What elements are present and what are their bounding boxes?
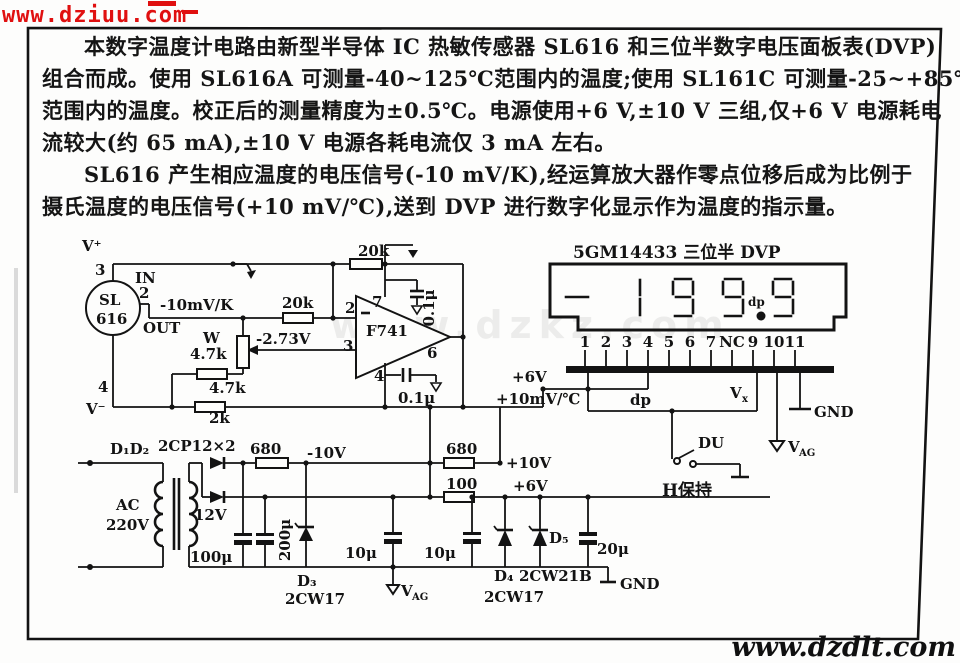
label-200u: 200μ (276, 519, 294, 561)
label-cap01-bot: 0.1μ (398, 389, 435, 407)
pin-number: 9 (748, 333, 758, 351)
transformer-primary (155, 482, 163, 546)
pin-number: 2 (601, 333, 611, 351)
cap-plate (463, 532, 481, 535)
label-du: DU (698, 434, 724, 452)
label-d5-type: 2CW21B (519, 567, 592, 585)
cap-plate (579, 540, 597, 545)
cap-plate (384, 532, 402, 535)
label-pot-value: 4.7k (190, 345, 227, 363)
label-rectifier-type: 2CP12×2 (158, 437, 236, 455)
label-sl: SL (99, 291, 121, 309)
label-out: OUT (143, 319, 181, 337)
label-rail-pos10: +10V (506, 454, 551, 472)
label-cap01-top: 0.1μ (420, 289, 438, 326)
label-op-pin7: 7 (372, 293, 382, 311)
pin-number: 7 (706, 333, 716, 351)
label-d3: D₃ (297, 572, 317, 590)
label-pin4: 4 (98, 378, 108, 396)
pin-number: NC (719, 333, 745, 351)
description-line: SL616 产生相应温度的电压信号(-10 mV/K),经运算放大器作零点位移后… (42, 159, 942, 191)
label-vx: V (729, 384, 742, 402)
label-r20k-in: 20k (282, 294, 314, 312)
label-r680b: 680 (446, 440, 477, 458)
zener-d4 (498, 530, 512, 546)
cap-plate (579, 532, 597, 536)
label-220v: 220V (106, 516, 149, 534)
pin-number: 5 (664, 333, 674, 351)
pin-number: 4 (643, 333, 653, 351)
label-gnd-psu: GND (620, 575, 660, 593)
label-temp-coeff: -10mV/K (160, 296, 234, 314)
label-d1d2: D₁D₂ (110, 440, 149, 458)
label-offset-v: -2.73V (256, 330, 311, 348)
label-12v: 12V (194, 506, 227, 524)
label-vag-sub: AG (798, 448, 815, 459)
pin-number: 11 (785, 333, 806, 351)
label-10u-a: 10μ (345, 544, 377, 562)
diode-d1 (210, 457, 224, 469)
vag-arrow-icon (770, 441, 784, 451)
description-line: 范围内的温度。校正后的测量精度为±0.5℃。电源使用+6 V,±10 V 三组,… (42, 95, 942, 127)
cap-plate (463, 539, 481, 544)
display-digit-9 (773, 279, 793, 316)
cap-plate (234, 533, 252, 536)
watermark-dash (148, 1, 176, 6)
description-line: 本数字温度计电路由新型半导体 IC 热敏传感器 SL616 和三位半数字电压面板… (42, 31, 942, 63)
zener-d5 (533, 530, 547, 546)
dvp-title: 5GM14433 三位半 DVP (573, 242, 781, 263)
label-dp-wire: dp (630, 391, 651, 409)
zener-d3 (299, 527, 313, 541)
vag-arrow-icon (387, 585, 399, 594)
description-text: 本数字温度计电路由新型半导体 IC 热敏传感器 SL616 和三位半数字电压面板… (42, 31, 942, 223)
cap-plate (234, 540, 252, 545)
description-line: 摄氏温度的电压信号(+10 mV/℃),送到 DVP 进行数字化显示作为温度的指… (42, 191, 942, 223)
label-ac: AC (115, 496, 140, 514)
switch-blade (679, 450, 694, 458)
label-d5: D₅ (549, 529, 569, 547)
supply-arrow-icon (408, 250, 418, 258)
decimal-point-dot (757, 312, 766, 321)
label-opamp: F741 (366, 322, 408, 340)
resistor-4k7 (197, 369, 227, 379)
label-r100: 100 (446, 475, 477, 493)
label-r47k: 4.7k (209, 379, 246, 397)
potentiometer-w (237, 336, 249, 368)
pin-number: 1 (580, 333, 590, 351)
label-10u-b: 10μ (424, 544, 456, 562)
label-20u: 20μ (597, 540, 629, 558)
label-d4-type: 2CW17 (484, 588, 544, 606)
label-616: 616 (96, 310, 127, 328)
resistor-680a (256, 458, 288, 468)
label-vx-sub: x (742, 394, 749, 405)
label-supply-6v: +6V (512, 368, 547, 386)
description-line: 组合而成。使用 SL616A 可测量-40~125℃范围内的温度;使用 SL16… (42, 63, 942, 95)
watermark-top: www.dziuu.com (2, 3, 187, 28)
watermark-bottom: www.dzdlt.com (731, 632, 956, 663)
pin-number: 10 (764, 333, 785, 351)
label-vag2-sub: AG (411, 592, 428, 603)
diode-d2 (210, 491, 224, 503)
label-op-pin6: 6 (427, 344, 437, 362)
cap-plate (384, 539, 402, 544)
pin-number: 6 (685, 333, 695, 351)
resistor-20k-feedback (350, 259, 382, 269)
label-rail-neg10: -10V (307, 444, 346, 462)
pin-number: 3 (622, 333, 632, 351)
label-signal-10mv: +10mV/℃ (496, 390, 580, 408)
label-v-minus: V⁻ (85, 400, 106, 418)
resistor-20k-input (283, 313, 313, 323)
label-op-pin3: 3 (343, 337, 353, 355)
label-r20k-fb: 20k (358, 242, 390, 260)
label-pin2: 2 (139, 284, 149, 302)
switch-contact (674, 458, 680, 464)
resistor-680b (444, 458, 474, 468)
watermark-dash (182, 10, 198, 14)
label-r2k: 2k (209, 409, 230, 427)
label-rail-pos6: +6V (513, 477, 548, 495)
label-op-pin4: 4 (374, 367, 384, 385)
scanned-page: www.dziuu.com 本数字温度计电路由新型半导体 IC 热敏传感器 SL… (0, 0, 960, 661)
power-supply-section: D₁D₂ 2CP12×2 680 -10V AC 220V 12V 100μ 2… (78, 407, 770, 608)
pin-bus-bar (566, 366, 834, 373)
label-op-pin2: 2 (345, 299, 355, 317)
label-v-plus: V⁺ (81, 237, 102, 255)
label-gnd-dvp: GND (814, 403, 854, 421)
label-d4: D₄ (494, 567, 514, 585)
description-line: 流较大(约 65 mA),±10 V 电源各耗电流仅 3 mA 左右。 (42, 127, 942, 159)
switch-contact (690, 461, 696, 467)
label-dp-display: dp (748, 295, 765, 309)
supply-arrow-icon (247, 270, 256, 279)
cap-plate (256, 533, 274, 536)
label-100u: 100μ (190, 548, 232, 566)
label-r680a: 680 (250, 440, 281, 458)
label-pin3: 3 (95, 261, 105, 279)
cap-plate (256, 540, 274, 545)
label-d3-type: 2CW17 (285, 590, 345, 608)
